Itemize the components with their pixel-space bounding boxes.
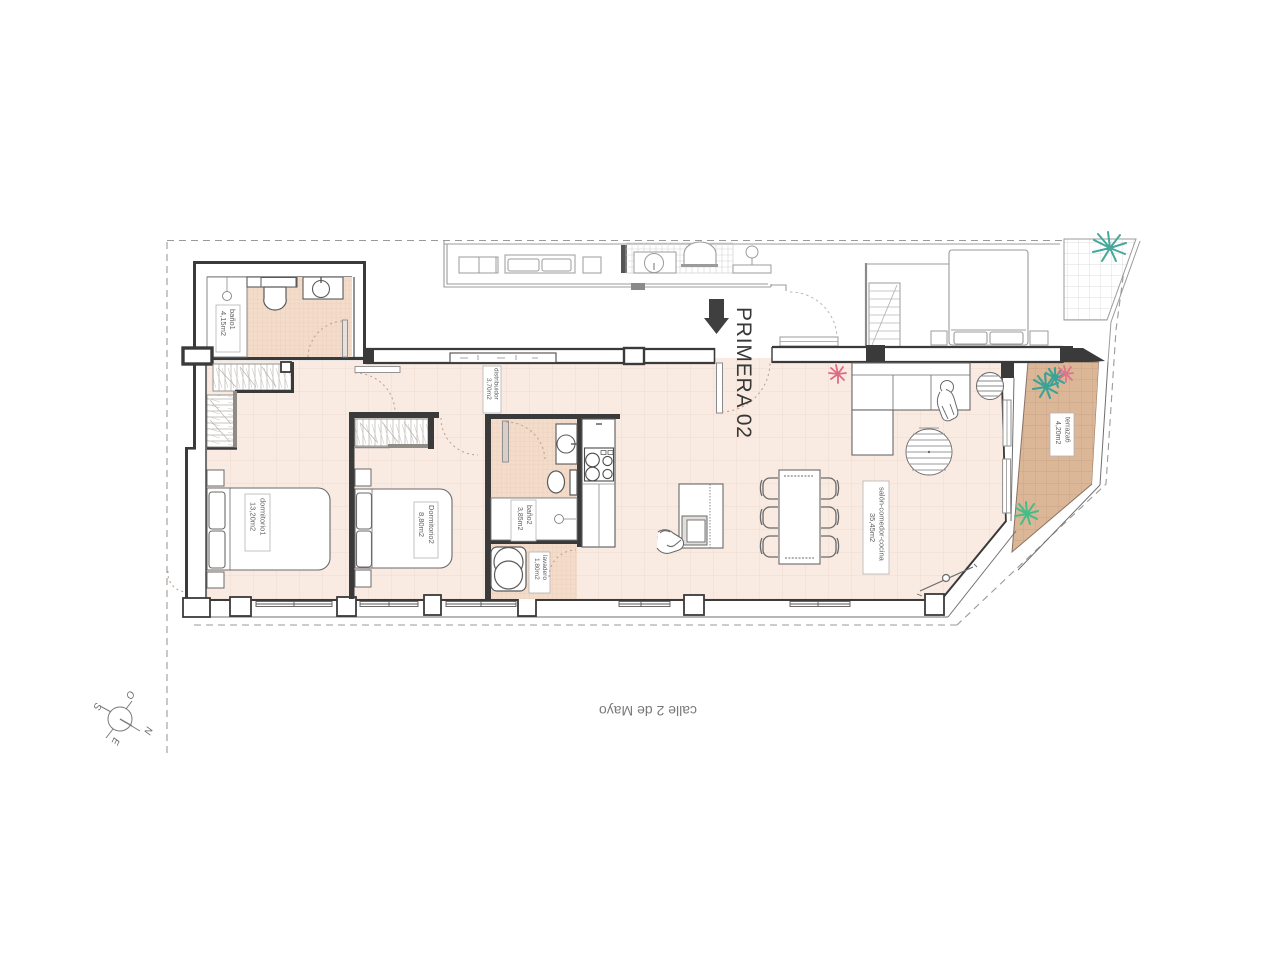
svg-text:4,15m2: 4,15m2 xyxy=(219,311,228,336)
svg-text:dormitorio1: dormitorio1 xyxy=(259,498,268,536)
svg-text:terraza6: terraza6 xyxy=(1064,417,1071,443)
svg-text:35,45m2: 35,45m2 xyxy=(868,513,877,542)
svg-text:8,80m2: 8,80m2 xyxy=(417,512,426,537)
svg-text:13,20m2: 13,20m2 xyxy=(249,502,258,531)
svg-text:distribuidor: distribuidor xyxy=(493,368,500,401)
svg-text:PRIMERA 02: PRIMERA 02 xyxy=(732,307,755,439)
svg-text:calle 2 de Mayo: calle 2 de Mayo xyxy=(599,703,697,719)
svg-text:3,70m2: 3,70m2 xyxy=(485,378,492,400)
svg-text:Dormitorio2: Dormitorio2 xyxy=(427,505,436,544)
svg-text:salón-comedor-cocina: salón-comedor-cocina xyxy=(878,487,887,562)
svg-text:1,80m2: 1,80m2 xyxy=(533,558,540,580)
svg-text:lavadero: lavadero xyxy=(541,555,548,580)
svg-text:baño1: baño1 xyxy=(228,309,237,330)
svg-text:3,85m2: 3,85m2 xyxy=(516,507,523,530)
svg-text:baño2: baño2 xyxy=(525,505,532,525)
svg-text:4,20m2: 4,20m2 xyxy=(1054,421,1061,444)
